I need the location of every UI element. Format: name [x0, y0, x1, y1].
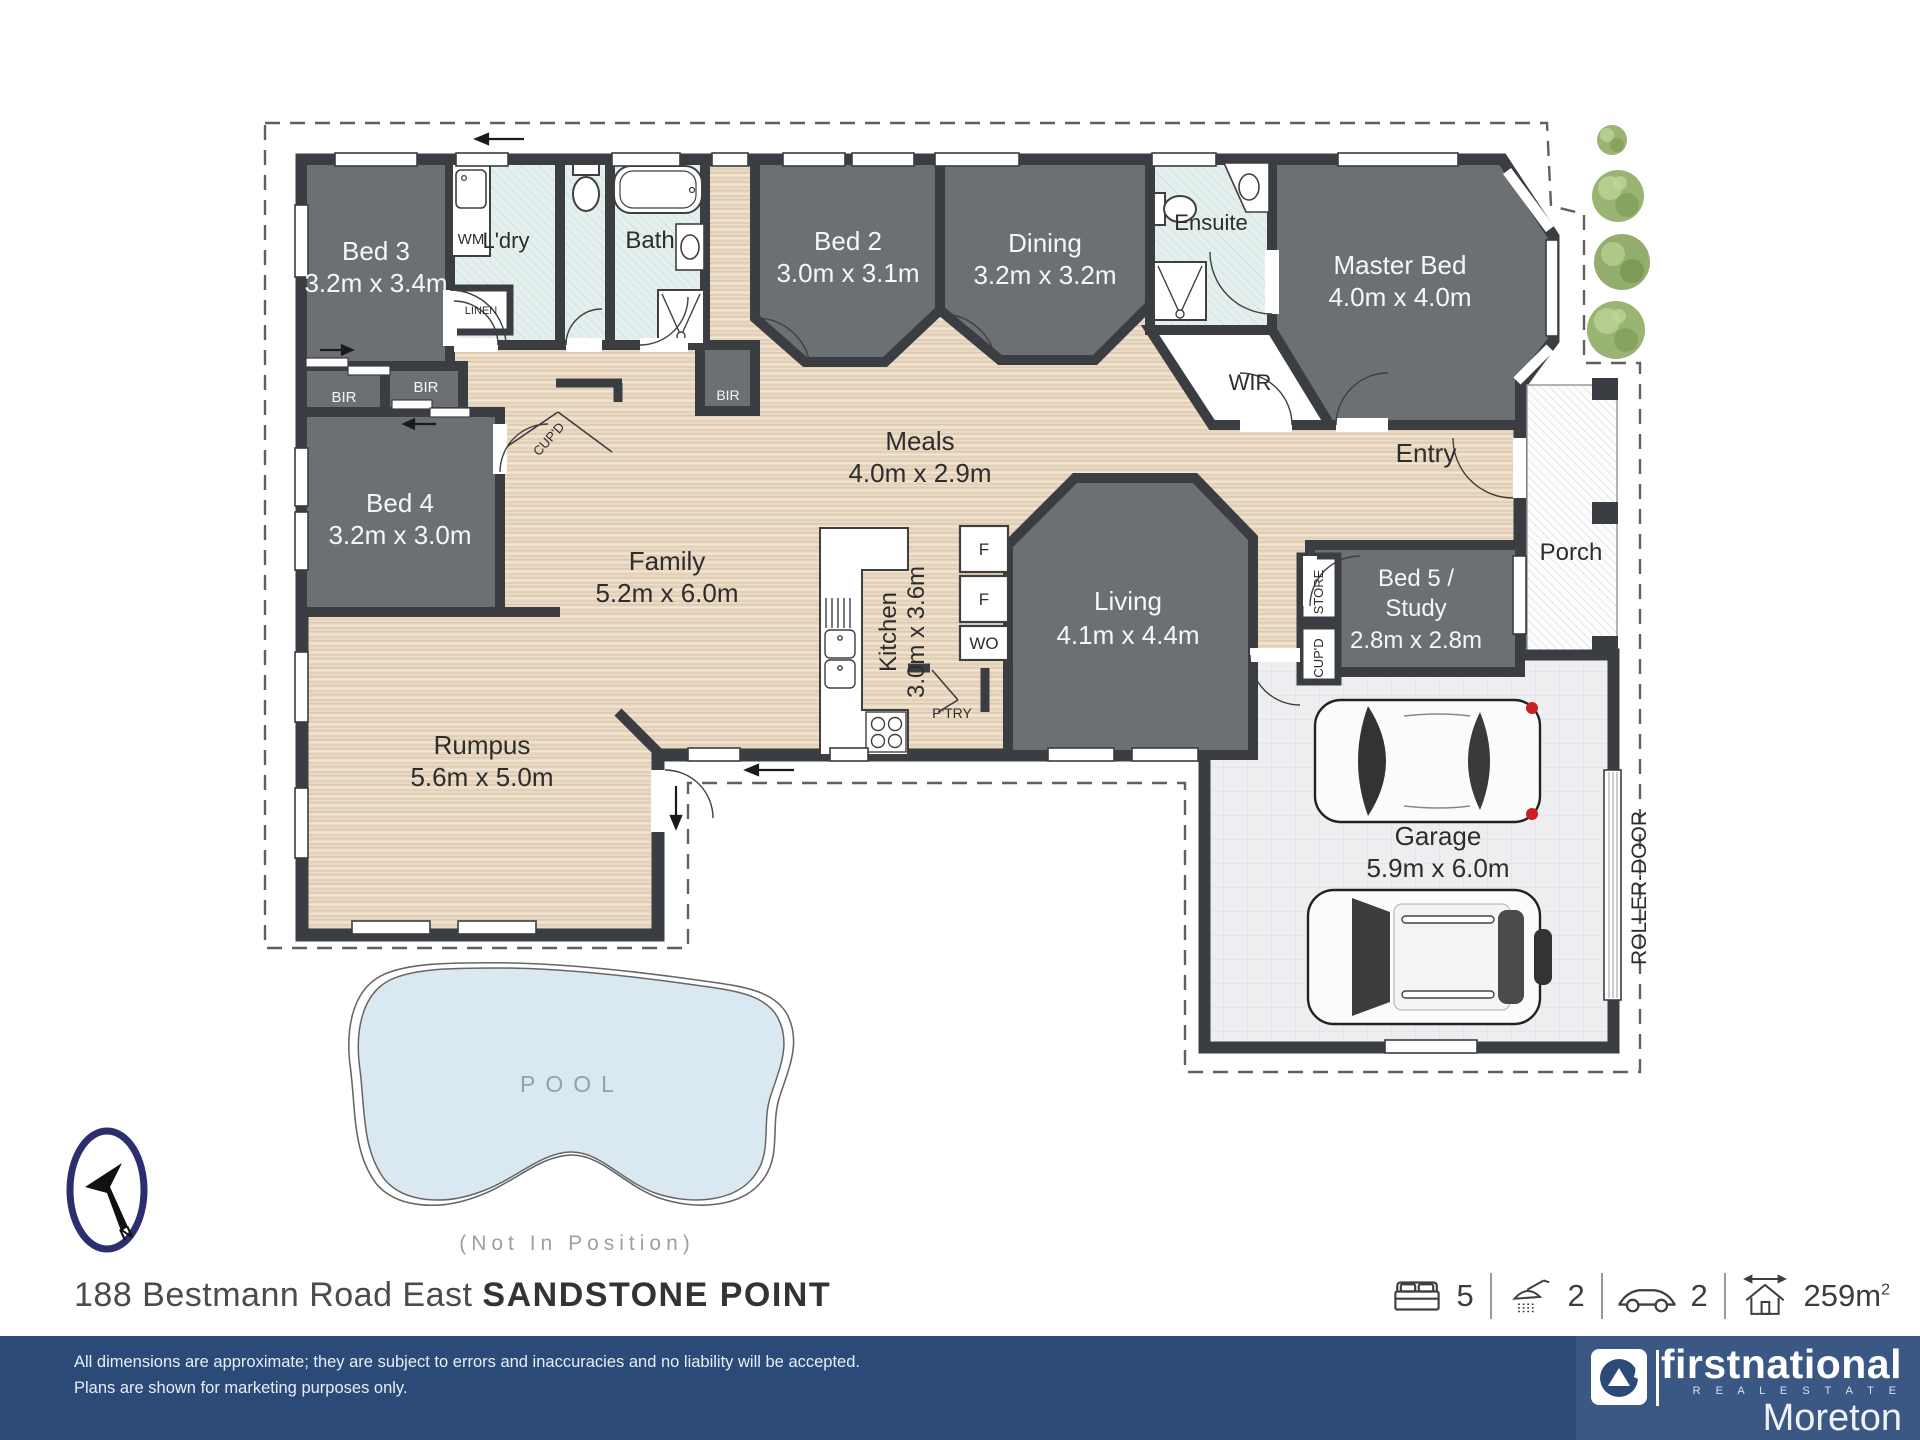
footer: All dimensions are approximate; they are… [0, 1336, 1920, 1440]
address-line: 188 Bestmann Road East SANDSTONE POINT [74, 1276, 831, 1315]
label-bed3: Bed 3 [342, 236, 410, 266]
svg-text:3.0m x 3.6m: 3.0m x 3.6m [903, 566, 930, 698]
label-bed4: Bed 4 [366, 488, 434, 518]
bed-icon [1390, 1277, 1444, 1315]
label-pantry: P'TRY [932, 705, 972, 721]
car-count: 2 [1691, 1278, 1711, 1314]
trees [1587, 125, 1650, 359]
stats-separator [1724, 1273, 1726, 1319]
disclaimer-line2: Plans are shown for marketing purposes o… [74, 1375, 860, 1401]
floor-plan: POOL (Not In Position) N Bed 3 3.2m x 3.… [0, 0, 1920, 1260]
svg-text:3.2m x 3.4m: 3.2m x 3.4m [304, 268, 447, 298]
compass: N [70, 1131, 144, 1249]
label-fridge-1: F [979, 540, 989, 559]
disclaimer-line1: All dimensions are approximate; they are… [74, 1349, 860, 1375]
label-bath: Bath [625, 227, 674, 254]
car-suv [1308, 890, 1552, 1024]
svg-text:5.2m x 6.0m: 5.2m x 6.0m [595, 578, 738, 608]
logo-divider [1656, 1350, 1659, 1406]
roller-door [1604, 770, 1621, 1000]
label-roller-door: ROLLER-DOOR [1628, 811, 1651, 965]
pool-label: POOL [520, 1071, 624, 1097]
address-suburb: SANDSTONE POINT [482, 1276, 831, 1314]
label-bir-1: BIR [331, 389, 356, 406]
room-living [1008, 478, 1253, 755]
area-icon [1739, 1273, 1791, 1319]
label-entry: Entry [1396, 438, 1457, 468]
svg-text:4.0m x 4.0m: 4.0m x 4.0m [1328, 282, 1471, 312]
label-wir: WIR [1229, 370, 1272, 395]
label-master: Master Bed [1334, 250, 1467, 280]
label-dining: Dining [1008, 228, 1082, 258]
label-wall-oven: WO [969, 634, 998, 653]
bed-count: 5 [1457, 1278, 1477, 1314]
bath-count: 2 [1568, 1278, 1588, 1314]
svg-text:3.2m x 3.2m: 3.2m x 3.2m [973, 260, 1116, 290]
floorplan-page: { "rooms": { "bed3": {"name":"Bed 3","di… [0, 0, 1920, 1440]
label-living: Living [1094, 586, 1162, 616]
pool-note: (Not In Position) [459, 1232, 695, 1255]
svg-text:3.0m x 3.1m: 3.0m x 3.1m [776, 258, 919, 288]
area-value: 259m2 [1804, 1278, 1890, 1314]
address-street: 188 Bestmann Road East [74, 1276, 472, 1314]
brand-name: firstnational [1661, 1344, 1902, 1384]
svg-text:4.0m x 2.9m: 4.0m x 2.9m [848, 458, 991, 488]
car-icon [1616, 1276, 1678, 1316]
label-bir-3: BIR [716, 387, 739, 403]
svg-text:3.2m x 3.0m: 3.2m x 3.0m [328, 520, 471, 550]
svg-text:2.8m x 2.8m: 2.8m x 2.8m [1350, 627, 1482, 654]
property-stats: 5 2 2 259m2 [1390, 1268, 1890, 1324]
brand-office: Moreton [1661, 1398, 1902, 1438]
brand-tagline: R E A L E S T A T E [1661, 1384, 1902, 1398]
label-fridge-2: F [979, 590, 989, 609]
svg-text:Study: Study [1385, 595, 1446, 622]
wc-toilet [573, 164, 599, 211]
porch [1527, 378, 1618, 658]
shower-icon [1505, 1275, 1555, 1317]
svg-text:5.6m x 5.0m: 5.6m x 5.0m [410, 762, 553, 792]
label-rumpus: Rumpus [434, 730, 531, 760]
label-bed5: Bed 5 / [1378, 565, 1454, 592]
pool: POOL [349, 963, 794, 1205]
brand-panel: firstnational R E A L E S T A T E Moreto… [1576, 1336, 1920, 1440]
svg-text:5.9m x 6.0m: 5.9m x 6.0m [1366, 853, 1509, 883]
car-sports [1315, 700, 1540, 822]
label-family: Family [629, 546, 706, 576]
label-porch: Porch [1540, 539, 1603, 566]
label-store: STORE [1311, 569, 1326, 614]
label-bed2: Bed 2 [814, 226, 882, 256]
firstnational-logo-icon [1590, 1348, 1648, 1406]
stats-separator [1601, 1273, 1603, 1319]
label-bir-2: BIR [413, 379, 438, 396]
label-garage: Garage [1395, 821, 1482, 851]
svg-text:4.1m x 4.4m: 4.1m x 4.4m [1056, 620, 1199, 650]
stats-separator [1490, 1273, 1492, 1319]
label-ldry: L'dry [483, 228, 530, 253]
disclaimer: All dimensions are approximate; they are… [74, 1349, 860, 1401]
label-kitchen: Kitchen [875, 592, 902, 672]
label-meals: Meals [885, 426, 954, 456]
label-ensuite: Ensuite [1174, 210, 1247, 235]
label-wm: WM [458, 231, 485, 248]
label-cupd-bed5: CUP'D [1311, 638, 1326, 677]
label-linen: LINEN [465, 305, 497, 317]
